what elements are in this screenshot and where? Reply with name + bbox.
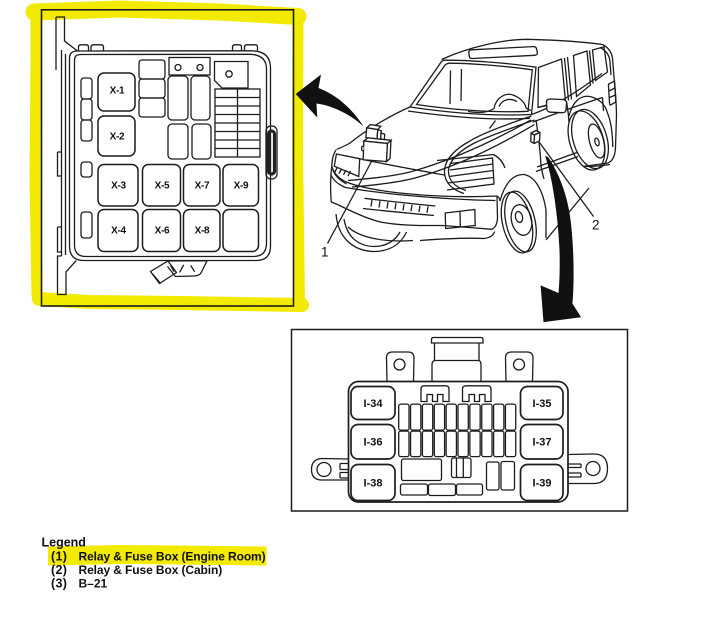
svg-text:X-2: X-2 — [110, 132, 125, 143]
svg-text:1: 1 — [321, 245, 329, 260]
svg-text:I-39: I-39 — [533, 478, 552, 490]
svg-text:I-38: I-38 — [364, 478, 383, 490]
svg-text:X-5: X-5 — [155, 181, 170, 192]
svg-text:X-8: X-8 — [195, 226, 210, 237]
svg-text:I-34: I-34 — [364, 398, 384, 410]
svg-text:(1): (1) — [51, 550, 67, 564]
svg-text:X-3: X-3 — [111, 181, 126, 192]
svg-text:B–21: B–21 — [79, 577, 108, 591]
svg-text:(2): (2) — [51, 563, 67, 577]
svg-text:X-7: X-7 — [195, 181, 210, 192]
svg-text:I-35: I-35 — [533, 398, 552, 410]
svg-text:I-36: I-36 — [364, 437, 383, 449]
svg-text:I-37: I-37 — [533, 437, 552, 449]
svg-text:X-6: X-6 — [155, 226, 170, 237]
svg-text:X-4: X-4 — [111, 226, 126, 237]
svg-text:Legend: Legend — [42, 536, 86, 550]
svg-text:Relay & Fuse Box (Engine Room): Relay & Fuse Box (Engine Room) — [79, 550, 266, 564]
svg-text:Relay & Fuse Box (Cabin): Relay & Fuse Box (Cabin) — [79, 563, 223, 577]
svg-text:X-1: X-1 — [110, 86, 125, 97]
svg-text:2: 2 — [592, 218, 600, 233]
svg-text:X-9: X-9 — [234, 181, 249, 192]
svg-text:(3): (3) — [51, 577, 67, 591]
